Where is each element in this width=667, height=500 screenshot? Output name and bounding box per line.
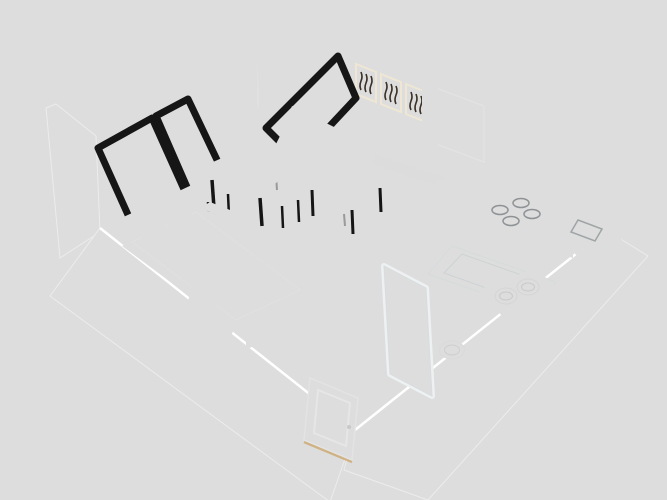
chair-leg (298, 200, 299, 222)
stove-burner-3 (503, 217, 519, 226)
curtain-left (422, 70, 438, 150)
floor-plan-3d-render (0, 0, 667, 500)
sink-basin-1-inner (500, 292, 513, 300)
sofa-leg (344, 214, 345, 226)
stove-burner-4 (524, 210, 540, 219)
window-glass-pane (441, 93, 458, 142)
toilet (440, 341, 465, 359)
scene-canvas (0, 0, 667, 500)
stove-burner-1 (492, 206, 508, 215)
coffee-table-leg (352, 210, 353, 234)
coffee-table-leg (312, 190, 313, 216)
coffee-table-leg (380, 188, 381, 212)
table-leg (260, 198, 262, 226)
door-knob (347, 425, 351, 429)
glass-partition (384, 266, 432, 396)
stove-burner-2 (513, 199, 529, 208)
window-glass-pane (463, 101, 479, 152)
chair-leg (282, 206, 283, 228)
toilet-seat-inner (445, 345, 460, 355)
sink-basin-2-inner (522, 283, 535, 291)
